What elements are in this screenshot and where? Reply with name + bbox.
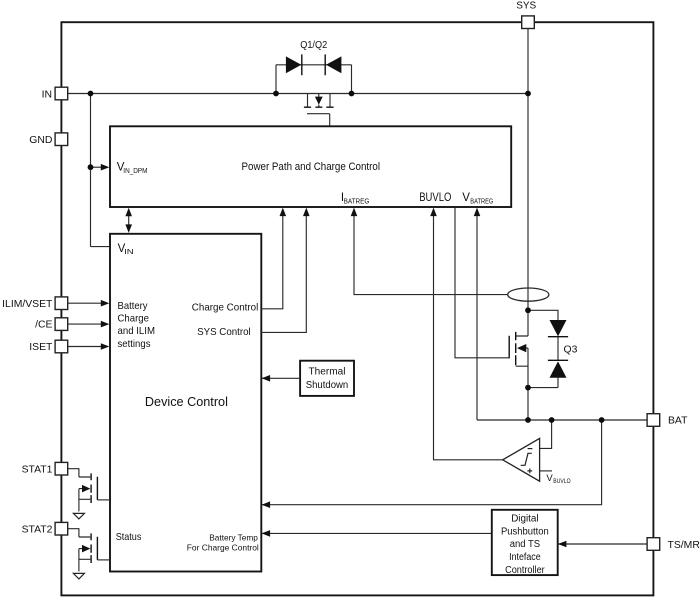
svg-text:SYS Control: SYS Control xyxy=(197,326,251,338)
svg-text:TS/MR: TS/MR xyxy=(668,540,700,551)
svg-text:Q3: Q3 xyxy=(564,344,578,355)
svg-text:For Charge Control: For Charge Control xyxy=(187,543,259,553)
svg-text:and ILIM: and ILIM xyxy=(118,326,156,337)
svg-text:and TS: and TS xyxy=(510,539,541,550)
svg-text:Controller: Controller xyxy=(505,565,545,576)
svg-text:Power Path and Charge Control: Power Path and Charge Control xyxy=(242,161,381,173)
svg-text:BUVLO: BUVLO xyxy=(419,192,451,204)
svg-text:V: V xyxy=(462,192,470,204)
svg-text:Q1/Q2: Q1/Q2 xyxy=(300,40,327,51)
svg-text:BAT: BAT xyxy=(668,416,688,427)
svg-text:settings: settings xyxy=(118,339,151,350)
svg-text:/CE: /CE xyxy=(35,320,52,331)
svg-text:SYS: SYS xyxy=(516,1,536,12)
svg-text:Device Control: Device Control xyxy=(145,394,228,409)
svg-text:STAT1: STAT1 xyxy=(22,464,53,475)
svg-text:Digital: Digital xyxy=(511,514,538,525)
svg-text:Thermal: Thermal xyxy=(309,367,346,378)
svg-text:BATREG: BATREG xyxy=(344,198,370,205)
svg-text:BUVLO: BUVLO xyxy=(553,478,570,485)
svg-text:Battery Temp: Battery Temp xyxy=(209,533,258,543)
svg-text:GND: GND xyxy=(29,135,52,146)
svg-text:IN_DPM: IN_DPM xyxy=(123,168,147,175)
svg-text:Charge: Charge xyxy=(118,314,150,325)
svg-text:STAT2: STAT2 xyxy=(22,524,53,535)
svg-text:Shutdown: Shutdown xyxy=(306,380,349,391)
svg-text:Inteface: Inteface xyxy=(509,552,541,563)
svg-text:Charge Control: Charge Control xyxy=(192,302,258,314)
svg-text:Pushbutton: Pushbutton xyxy=(501,526,549,537)
svg-text:Battery: Battery xyxy=(118,301,149,312)
svg-text:ILIM/VSET: ILIM/VSET xyxy=(2,299,53,310)
svg-text:Status: Status xyxy=(116,532,142,543)
svg-text:BATREG: BATREG xyxy=(470,198,493,205)
svg-text:ISET: ISET xyxy=(29,342,53,353)
svg-text:IN: IN xyxy=(124,249,134,256)
svg-text:IN: IN xyxy=(42,89,52,100)
